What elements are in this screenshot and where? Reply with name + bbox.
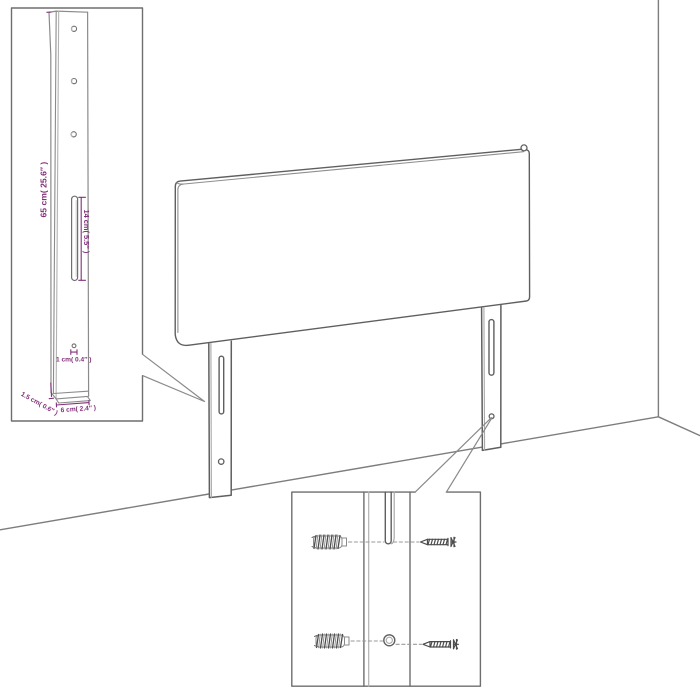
svg-text:1 cm( 0.4″ ): 1 cm( 0.4″ ) [56, 356, 91, 363]
svg-text:6 cm( 2.4″ ): 6 cm( 2.4″ ) [60, 405, 96, 414]
svg-text:14 cm( 5.5″ ): 14 cm( 5.5″ ) [82, 210, 91, 254]
svg-text:65 cm( 25.6″ ): 65 cm( 25.6″ ) [38, 162, 48, 218]
